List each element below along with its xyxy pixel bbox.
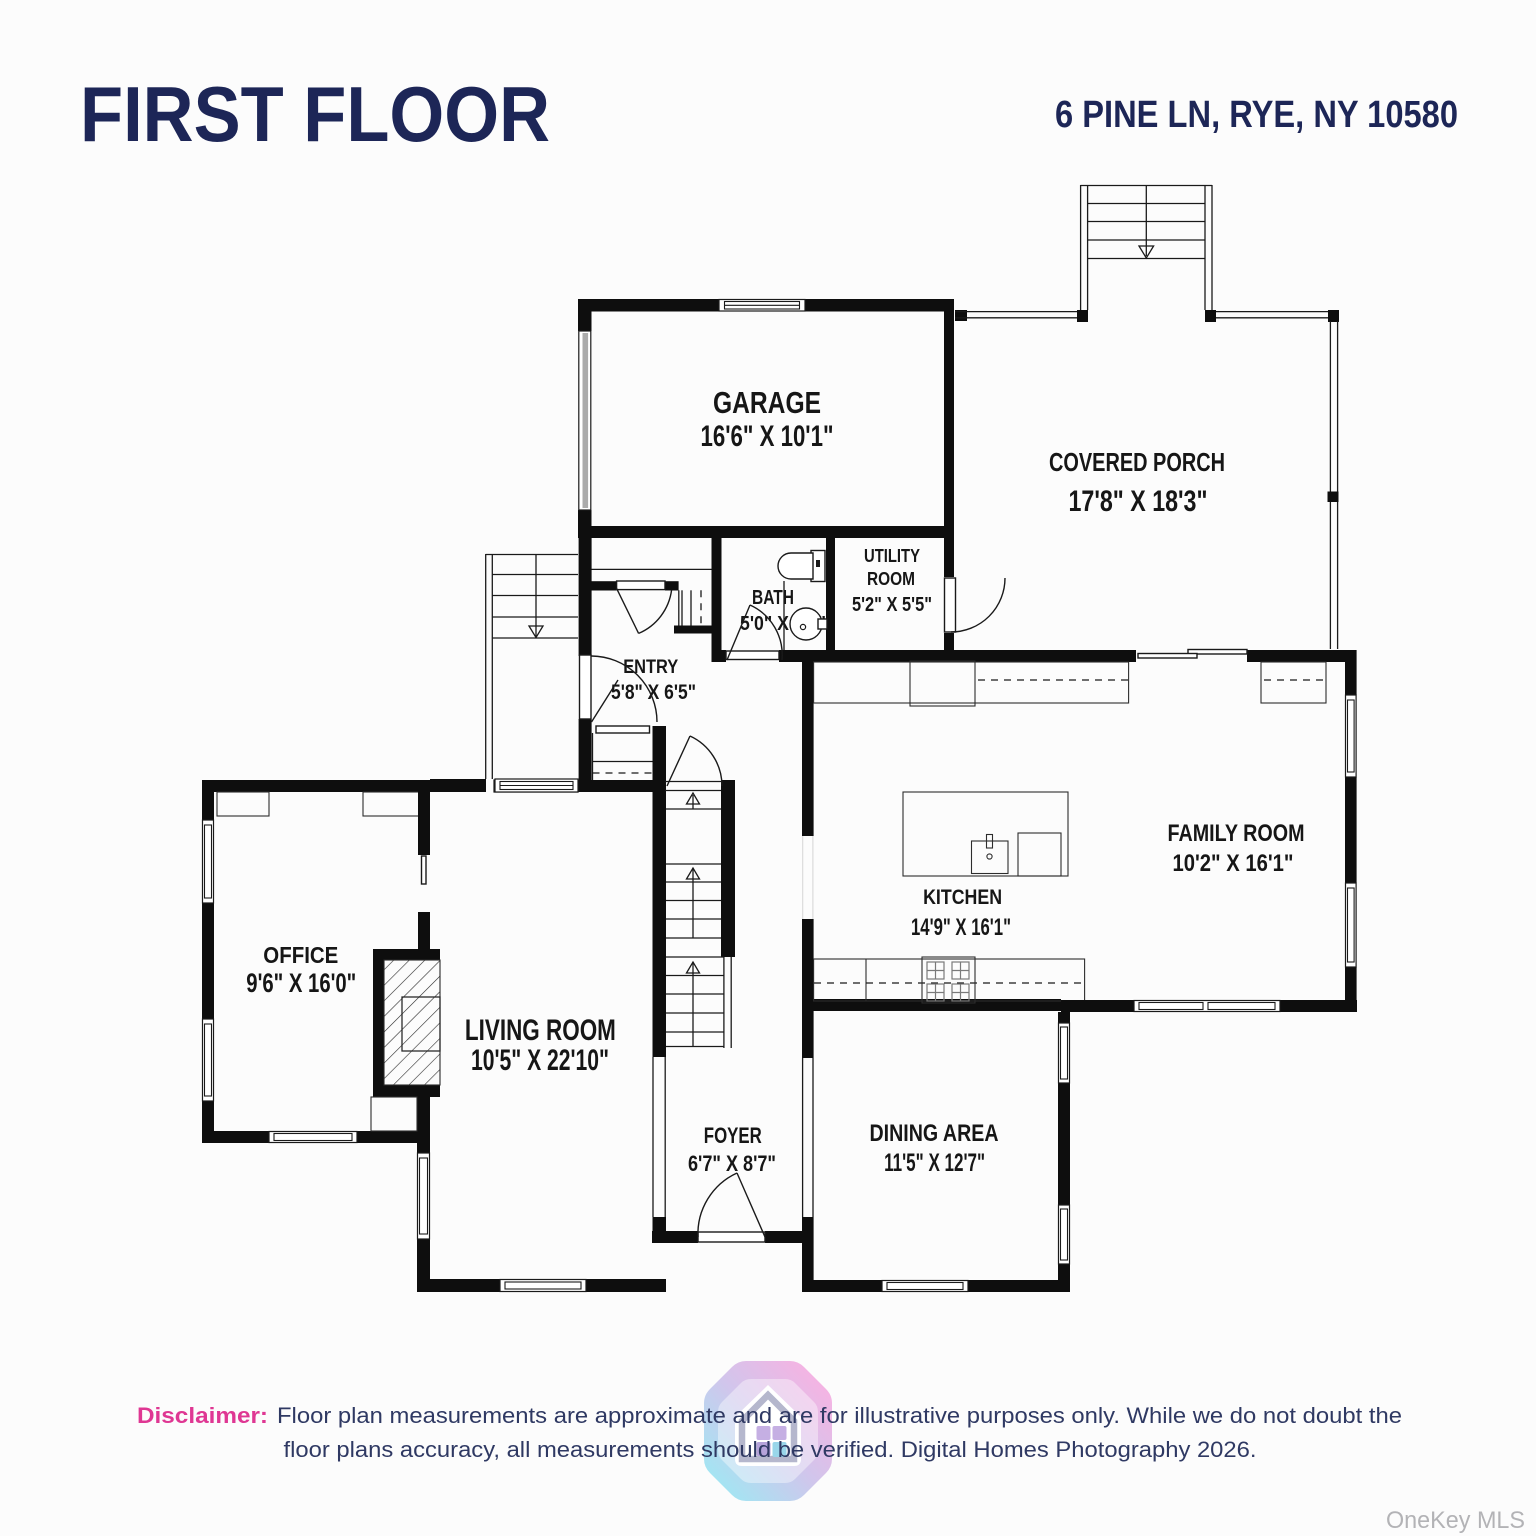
- svg-text:BATH: BATH: [752, 587, 794, 609]
- svg-text:floor plans accuracy, all meas: floor plans accuracy, all measurements s…: [284, 1437, 1257, 1462]
- svg-text:FAMILY ROOM: FAMILY ROOM: [1168, 820, 1305, 847]
- svg-text:6'7" X 8'7": 6'7" X 8'7": [688, 1151, 776, 1176]
- svg-text:10'5" X 22'10": 10'5" X 22'10": [471, 1044, 609, 1077]
- svg-text:LIVING ROOM: LIVING ROOM: [465, 1014, 616, 1047]
- svg-text:17'8" X 18'3": 17'8" X 18'3": [1069, 485, 1208, 518]
- svg-text:FOYER: FOYER: [704, 1123, 762, 1148]
- svg-text:ROOM: ROOM: [867, 568, 915, 589]
- svg-text:UTILITY: UTILITY: [864, 545, 920, 566]
- svg-text:GARAGE: GARAGE: [713, 386, 821, 420]
- svg-text:FIRST FLOOR: FIRST FLOOR: [80, 70, 550, 158]
- svg-text:16'6" X 10'1": 16'6" X 10'1": [701, 420, 834, 453]
- svg-text:10'2" X 16'1": 10'2" X 16'1": [1173, 850, 1294, 877]
- svg-text:ENTRY: ENTRY: [623, 656, 678, 678]
- svg-text:KITCHEN: KITCHEN: [923, 886, 1002, 909]
- svg-text:OneKey MLS: OneKey MLS: [1386, 1507, 1525, 1534]
- svg-text:11'5" X 12'7": 11'5" X 12'7": [884, 1149, 985, 1177]
- svg-text:Floor plan measurements are ap: Floor plan measurements are approximate …: [277, 1403, 1402, 1428]
- svg-text:14'9" X 16'1": 14'9" X 16'1": [911, 914, 1011, 941]
- svg-text:9'6" X 16'0": 9'6" X 16'0": [246, 968, 356, 998]
- svg-text:DINING AREA: DINING AREA: [870, 1120, 999, 1147]
- svg-text:OFFICE: OFFICE: [263, 942, 338, 968]
- svg-text:Disclaimer:: Disclaimer:: [137, 1403, 268, 1428]
- svg-text:5'2" X 5'5": 5'2" X 5'5": [852, 594, 932, 616]
- svg-text:COVERED PORCH: COVERED PORCH: [1049, 449, 1225, 477]
- svg-text:6 PINE LN, RYE, NY 10580: 6 PINE LN, RYE, NY 10580: [1055, 94, 1458, 136]
